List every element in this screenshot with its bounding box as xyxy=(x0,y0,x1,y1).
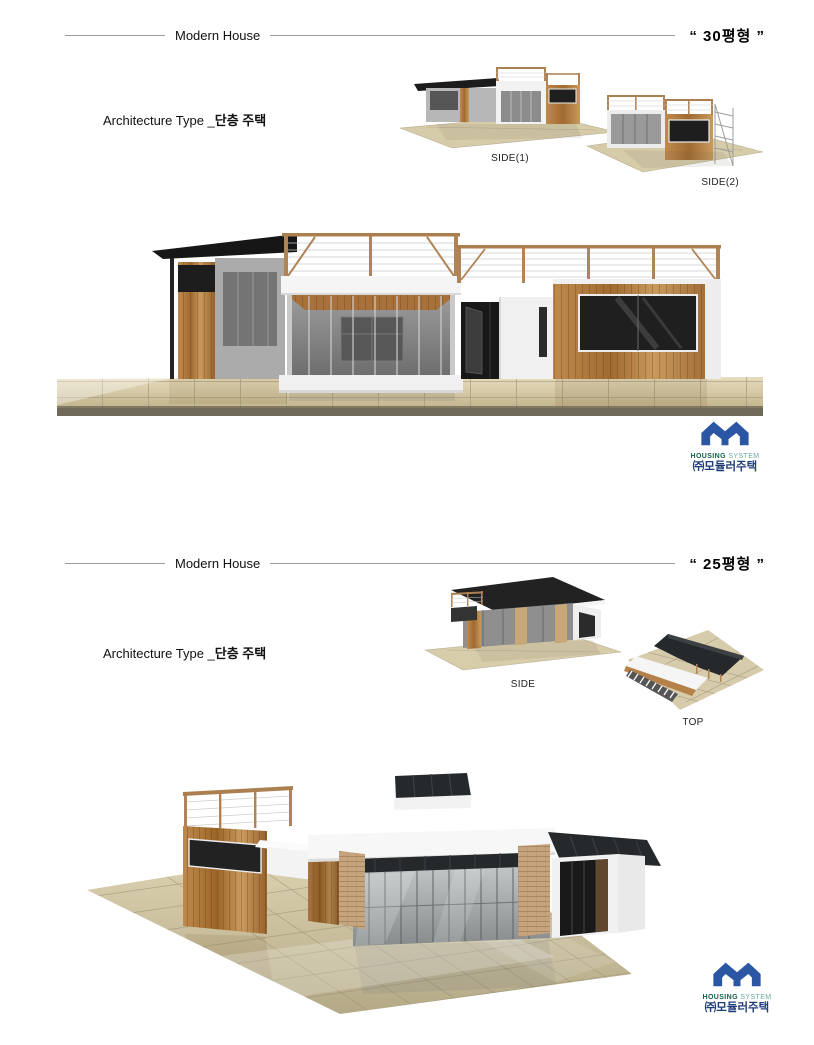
housing-m-logo-icon xyxy=(709,960,765,988)
render-side2-thumbnail xyxy=(583,80,767,174)
section2-title: Modern House xyxy=(175,556,260,571)
section2-header: Modern House “ 25평형 ” xyxy=(65,553,765,574)
section2-subtitle: Architecture Type _단층 주택 xyxy=(103,643,266,662)
render-top-thumbnail xyxy=(616,614,770,714)
logo-housing-system: HOUSING SYSTEM xyxy=(698,994,776,1002)
section1-main-render xyxy=(57,222,763,423)
render-front-elevation xyxy=(57,222,763,418)
logo-housing-text: HOUSING xyxy=(702,994,737,1001)
render-side-thumbnail xyxy=(423,572,623,676)
logo-housing-system: HOUSING SYSTEM xyxy=(686,453,764,461)
header-rule-right xyxy=(270,563,675,564)
subtitle-emphasis: 단층 주택 xyxy=(215,646,266,661)
subtitle-prefix: Architecture Type _ xyxy=(103,113,215,128)
header-rule-right xyxy=(270,35,675,36)
subtitle-emphasis: 단층 주택 xyxy=(215,113,266,128)
header-rule-left xyxy=(65,563,165,564)
subtitle-prefix: Architecture Type _ xyxy=(103,646,215,661)
brochure-page: Modern House “ 30평형 ” Architecture Type … xyxy=(0,0,814,1045)
header-rule-left xyxy=(65,35,165,36)
section1-side2-caption: SIDE(2) xyxy=(701,177,739,188)
section1-header: Modern House “ 30평형 ” xyxy=(65,25,765,46)
section2-top-caption: TOP xyxy=(682,717,703,728)
section2-top-figure: TOP xyxy=(616,614,770,728)
logo-system-text: SYSTEM xyxy=(728,453,759,460)
logo-system-text: SYSTEM xyxy=(740,994,771,1001)
section1-subtitle: Architecture Type _단층 주택 xyxy=(103,110,266,129)
section1-size-label: “ 30평형 ” xyxy=(689,25,765,46)
housing-m-logo-icon xyxy=(697,419,753,447)
section2-company-logo: HOUSING SYSTEM ㈜모듈러주택 xyxy=(698,960,776,1015)
logo-company-name: ㈜모듈러주택 xyxy=(698,1002,776,1015)
render-perspective xyxy=(55,752,767,1014)
logo-company-name: ㈜모듈러주택 xyxy=(686,461,764,474)
section1-company-logo: HOUSING SYSTEM ㈜모듈러주택 xyxy=(686,419,764,474)
section2-main-render xyxy=(55,752,767,1019)
section2-side-figure: SIDE xyxy=(423,572,623,690)
section1-side2-figure: SIDE(2) xyxy=(583,80,767,188)
section2-size-label: “ 25평형 ” xyxy=(689,553,765,574)
section1-title: Modern House xyxy=(175,28,260,43)
section1-side1-caption: SIDE(1) xyxy=(491,153,529,164)
section2-side-caption: SIDE xyxy=(511,679,536,690)
logo-housing-text: HOUSING xyxy=(690,453,725,460)
